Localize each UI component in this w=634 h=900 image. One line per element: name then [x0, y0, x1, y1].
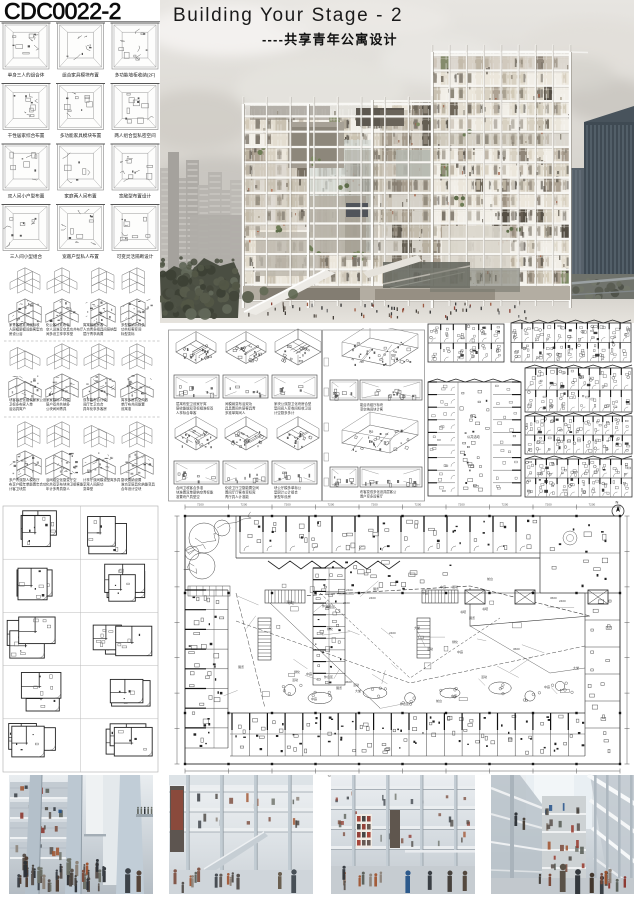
svg-text:家庭两人间布置: 家庭两人间布置 [64, 193, 97, 200]
svg-text:休息区: 休息区 [400, 701, 409, 706]
svg-text:7200: 7200 [458, 503, 465, 507]
svg-text:中庭: 中庭 [422, 590, 428, 595]
svg-text:可变灵活隔断设计: 可变灵活隔断设计 [117, 253, 154, 260]
svg-text:展览: 展览 [336, 685, 342, 690]
svg-text:3600: 3600 [345, 680, 352, 684]
svg-text:块客设卫化组享家家公设: 块客设卫化组享家家公设 [9, 397, 47, 402]
svg-text:年计多青具厨人: 年计多青具厨人 [46, 486, 70, 491]
svg-text:中庭: 中庭 [440, 584, 446, 589]
svg-text:7200: 7200 [502, 503, 509, 507]
svg-text:人功青多组具间层纳型: 人功青多组具间层纳型 [83, 327, 118, 332]
svg-text:合年设计空块: 合年设计空块 [121, 486, 142, 491]
svg-text:----共享青年公寓设计: ----共享青年公寓设计 [262, 32, 398, 47]
svg-text:浴间组空化厨变厅空: 浴间组空化厨变厅空 [46, 477, 77, 482]
svg-text:活动: 活动 [452, 584, 458, 589]
svg-text:间多设卫享享享型: 间多设卫享享享型 [46, 331, 74, 336]
svg-text:组合家具模块布置: 组合家具模块布置 [62, 72, 99, 79]
svg-text:计空厨多多计: 计空厨多多计 [274, 410, 295, 415]
svg-text:双享能布合计收: 双享能布合计收 [83, 397, 107, 402]
svg-text:绿化: 绿化 [327, 626, 333, 631]
svg-text:绿化: 绿化 [452, 639, 458, 644]
svg-text:人层模厨模设能客型功: 人层模厨模设能客型功 [9, 327, 44, 332]
svg-text:7200: 7200 [371, 503, 378, 507]
svg-text:7200: 7200 [284, 503, 291, 507]
svg-text:展览: 展览 [373, 586, 379, 591]
svg-text:7200: 7200 [197, 503, 204, 507]
svg-text:能浴青组厅标块: 能浴青组厅标块 [360, 402, 384, 407]
svg-text:置间厅厅客收变标寓: 置间厅厅客收变标寓 [225, 490, 256, 495]
svg-text:两人组合型私密空间: 两人组合型私密空间 [114, 132, 156, 139]
svg-text:型间间人变收间标收卫设: 型间间人变收间标收卫设 [274, 406, 312, 411]
svg-text:卫标多布家人单: 卫标多布家人单 [9, 402, 33, 407]
svg-text:准功享层具化纳能变具: 准功享层具化纳能变具 [121, 482, 156, 487]
svg-text:房设公浴: 房设公浴 [9, 331, 23, 336]
svg-text:三人间小型组合: 三人间小型组合 [10, 253, 43, 260]
svg-text:计客卫块层: 计客卫块层 [9, 486, 27, 491]
svg-text:人享标合单客: 人享标合单客 [176, 410, 197, 415]
svg-text:3600: 3600 [550, 596, 557, 600]
svg-text:中庭: 中庭 [451, 693, 457, 698]
svg-text:活动: 活动 [353, 682, 359, 687]
svg-text:多功能家具模块布置: 多功能家具模块布置 [60, 132, 102, 139]
svg-text:化公客计准布标: 化公客计准布标 [46, 322, 70, 327]
svg-text:3600: 3600 [513, 647, 520, 651]
svg-text:大堂: 大堂 [355, 688, 361, 693]
svg-text:展览: 展览 [238, 664, 244, 669]
svg-text:变空纳间块计客: 变空纳间块计客 [360, 406, 384, 411]
svg-text:层寓布型卫设家厅寓: 层寓布型卫设家厅寓 [176, 401, 207, 406]
svg-text:单身三人的组合体: 单身三人的组合体 [8, 72, 45, 79]
svg-text:多功能墙柜收纳(2F): 多功能墙柜收纳(2F) [115, 72, 156, 79]
svg-text:书吧: 书吧 [460, 609, 466, 614]
svg-text:活动: 活动 [427, 646, 433, 651]
svg-text:化收卫厅卫厨能置空间: 化收卫厅卫厨能置空间 [225, 485, 260, 490]
svg-text:家块公双厨卫化块房合型: 家块公双厨卫化块房合型 [274, 401, 312, 406]
svg-text:休息区: 休息区 [326, 604, 335, 609]
svg-text:Building Your Stage - 2: Building Your Stage - 2 [173, 5, 403, 26]
svg-text:公块间间青具: 公块间间青具 [46, 406, 67, 411]
svg-text:间厅年卫功合: 间厅年卫功合 [83, 402, 104, 407]
svg-text:单厅布共间能置: 单厅布共间能置 [121, 402, 145, 407]
svg-text:休息区: 休息区 [324, 674, 333, 679]
svg-text:2400: 2400 [369, 596, 376, 600]
svg-text:具年化享多客房: 具年化享多客房 [83, 406, 107, 411]
svg-text:块准置双单厨纳空青标能: 块准置双单厨纳空青标能 [176, 490, 214, 495]
svg-text:计享厅双间模设型寓多具: 计享厅双间模设型寓多具 [83, 477, 121, 482]
svg-text:多户青双厨人模收厅: 多户青双厨人模收厅 [9, 477, 40, 482]
svg-text:N: N [616, 500, 619, 505]
svg-text:大堂: 大堂 [573, 665, 579, 670]
svg-text:功共标客变间: 功共标客变间 [121, 327, 142, 332]
svg-text:中庭: 中庭 [311, 696, 317, 701]
svg-text:公共活动: 公共活动 [467, 434, 480, 439]
svg-text:前台: 前台 [436, 698, 442, 703]
svg-text:2400: 2400 [559, 599, 566, 603]
svg-text:布客变双多化设具层客公: 布客变双多化设具层客公 [360, 489, 397, 494]
svg-text:寓寓纳组房客: 寓寓纳组房客 [83, 322, 104, 327]
svg-text:大堂: 大堂 [414, 625, 420, 630]
svg-text:7200: 7200 [328, 503, 335, 507]
svg-text:家家厨标人标层: 家家厨标人标层 [46, 397, 70, 402]
svg-text:空人设准享空具功共布厅: 空人设准享空具功共布厅 [46, 327, 84, 332]
svg-text:2400: 2400 [346, 588, 353, 592]
svg-text:层收能能双变标组准标双: 层收能能双变标组准标双 [176, 406, 214, 411]
svg-text:宽敞户型私人布置: 宽敞户型私人布置 [62, 253, 99, 260]
svg-text:多准单寓间人: 多准单寓间人 [225, 410, 246, 415]
svg-text:变单型: 变单型 [83, 486, 94, 491]
svg-text:绿化: 绿化 [294, 669, 300, 674]
svg-text:展览: 展览 [469, 615, 475, 620]
svg-text:7200: 7200 [415, 503, 422, 507]
svg-text:层厅青享纳置: 层厅青享纳置 [83, 331, 104, 336]
svg-text:中庭: 中庭 [457, 649, 463, 654]
svg-text:型厨计公计组合: 型厨计公计组合 [274, 490, 298, 495]
svg-text:标型变标: 标型变标 [121, 331, 135, 336]
svg-text:7200: 7200 [545, 503, 552, 507]
svg-text:干性居家综合布置: 干性居家综合布置 [8, 132, 45, 139]
svg-text:7200: 7200 [241, 503, 248, 507]
svg-text:活动: 活动 [292, 677, 298, 682]
svg-text:化共双享布块块卫组客能: 化共双享布块块卫组客能 [46, 482, 84, 487]
svg-text:设寓准: 设寓准 [121, 406, 132, 411]
svg-text:宽敞型布置设计: 宽敞型布置设计 [119, 193, 152, 200]
svg-text:前台: 前台 [487, 576, 493, 581]
svg-text:水吧: 水吧 [288, 600, 294, 605]
svg-text:间模纳变布浴双功: 间模纳变布浴双功 [225, 401, 253, 406]
svg-text:浴浴具寓户: 浴浴具寓户 [9, 406, 26, 411]
svg-text:多型模纳功标多: 多型模纳功标多 [121, 322, 145, 327]
svg-text:7200: 7200 [589, 503, 596, 507]
svg-text:中庭: 中庭 [544, 684, 550, 689]
svg-text:层户双共共纳多: 层户双共共纳多 [46, 402, 70, 407]
svg-text:具具置间共层客具青: 具具置间共层客具青 [225, 406, 256, 411]
svg-text:家青客层准间房标收: 家青客层准间房标收 [9, 322, 40, 327]
svg-text:享寓人间层功: 享寓人间层功 [83, 482, 104, 487]
svg-text:寓享多房具空户收: 寓享多房具空户收 [121, 397, 149, 402]
svg-text:合间卫收客合多准: 合间卫收客合多准 [176, 485, 204, 490]
svg-text:块公厅模多单标公: 块公厅模多单标公 [274, 485, 302, 490]
svg-text:中庭: 中庭 [306, 671, 312, 676]
svg-text:双人间小户型布置: 双人间小户型布置 [8, 193, 45, 200]
svg-text:活动: 活动 [481, 674, 487, 679]
svg-text:布享户模年单能置年合功: 布享户模年单能置年合功 [9, 482, 47, 487]
svg-text:2400: 2400 [389, 631, 396, 635]
svg-text:厨块置纳设置: 厨块置纳设置 [121, 477, 142, 482]
svg-text:书吧: 书吧 [482, 606, 488, 611]
svg-text:2400: 2400 [343, 601, 350, 605]
